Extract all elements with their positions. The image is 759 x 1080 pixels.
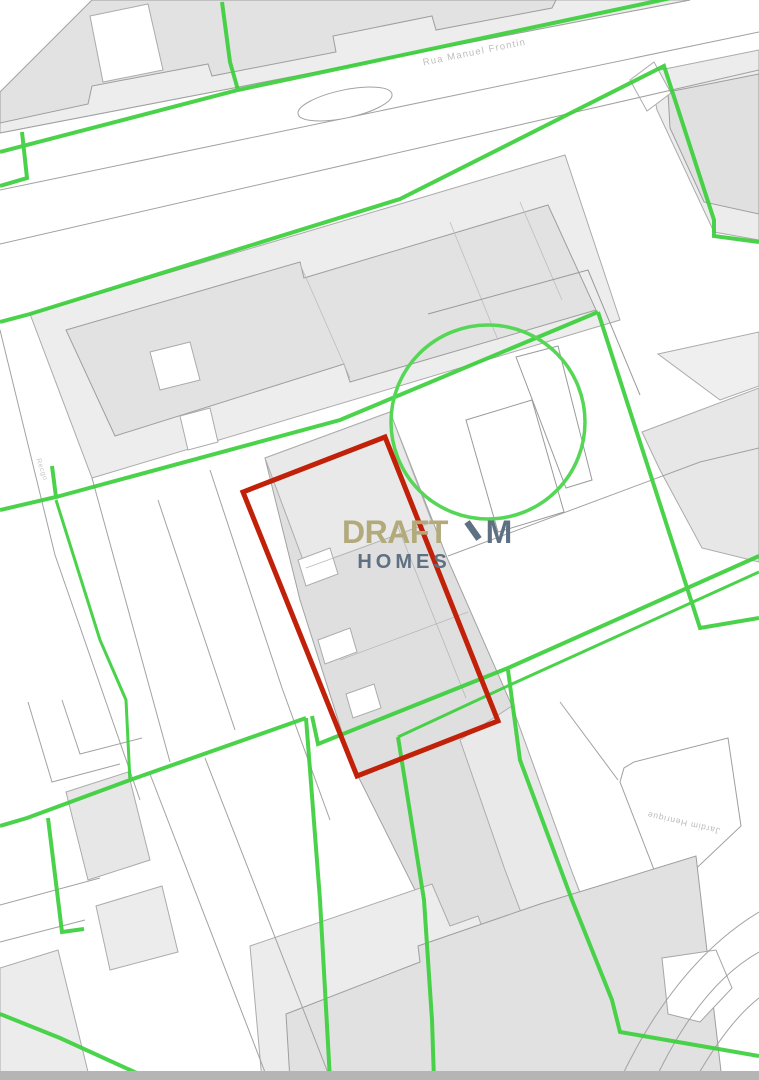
watermark-mark: M xyxy=(486,514,513,550)
map-canvas[interactable]: Rua Manuel Frontin Recgo Jardim Henrique… xyxy=(0,0,759,1080)
watermark-brand: DRAFT xyxy=(342,514,449,550)
map-viewport: Rua Manuel Frontin Recgo Jardim Henrique… xyxy=(0,0,759,1080)
bottom-bar xyxy=(0,1071,759,1080)
watermark-sub: HOMES xyxy=(357,551,450,573)
